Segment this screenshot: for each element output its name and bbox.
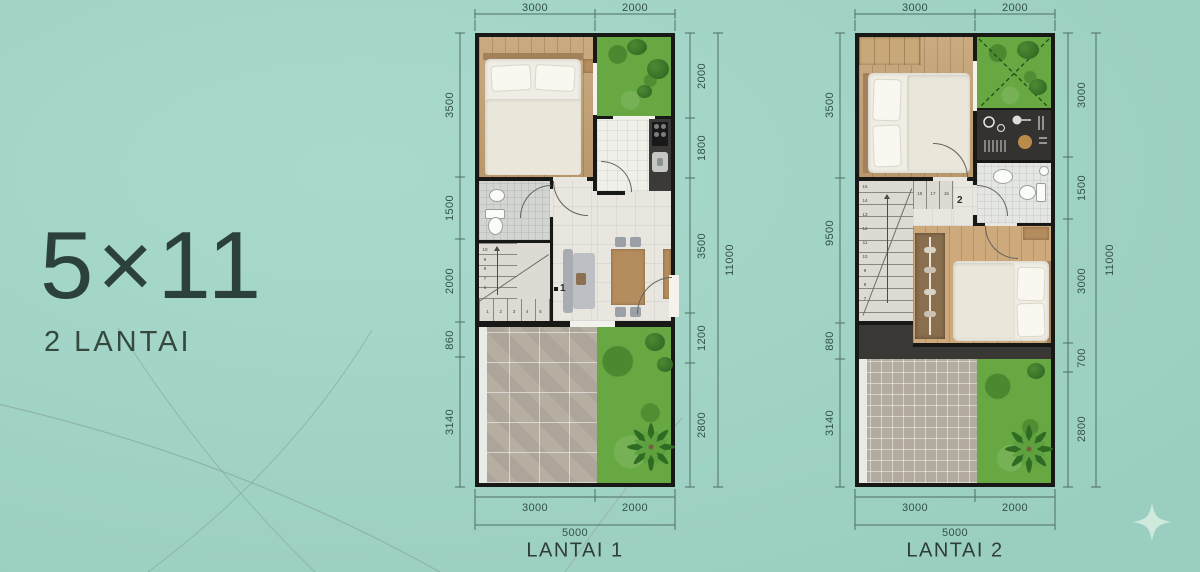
dim-label: 2800: [696, 412, 708, 438]
dim-label: 2000: [622, 2, 648, 14]
dim-label: 880: [824, 331, 836, 351]
utility-area: [977, 110, 1051, 160]
front-garden-below: [977, 359, 1051, 483]
dim-label-total: 11000: [1104, 244, 1116, 276]
dim-label: 3000: [902, 2, 928, 14]
plan-label-lantai-2: LANTAI 2: [906, 540, 1003, 563]
toilet-bowl-icon: [488, 217, 503, 235]
void-cross-lines: [977, 37, 1051, 110]
side-walkway: [479, 327, 487, 483]
side-table: [1023, 227, 1049, 240]
window: [593, 63, 597, 115]
sofa-cushion: [576, 273, 586, 285]
dim-label: 2000: [1002, 2, 1028, 14]
dim-label-total: 5000: [562, 527, 588, 539]
pillow: [872, 79, 901, 122]
dim-label: 1800: [696, 135, 708, 161]
roof-edge: [859, 359, 867, 483]
plan-label-lantai-1: LANTAI 1: [526, 540, 623, 563]
carport: [479, 327, 597, 483]
dim-label: 3500: [444, 92, 456, 118]
void-garden: [977, 37, 1051, 110]
stair-top-flight: 181716: [913, 181, 953, 209]
dim-label: 9500: [824, 220, 836, 246]
dim-label: 3500: [824, 92, 836, 118]
toilet-bowl-icon: [1019, 185, 1036, 200]
utensils-icons: [977, 110, 1051, 160]
dim-label: 1500: [1076, 175, 1088, 201]
sofa: [563, 249, 573, 313]
pillow: [872, 125, 901, 168]
palm-plant-icon: [623, 419, 679, 475]
floorplan-lantai-1: 109876 12345 1: [475, 33, 675, 487]
staircase: 109876 12345: [479, 243, 550, 321]
dim-label: 700: [1076, 348, 1088, 368]
window: [973, 61, 977, 111]
chair: [630, 237, 641, 247]
dim-label: 3000: [522, 2, 548, 14]
pillow: [490, 64, 531, 92]
bath-sink-icon: [993, 169, 1013, 184]
toilet-tank-icon: [1036, 183, 1046, 202]
stair-step-numbers: 12345: [481, 309, 547, 318]
chair: [615, 237, 626, 247]
sink-icon: [652, 152, 668, 172]
roof-edge-band: [859, 325, 913, 359]
rear-garden: [597, 37, 671, 116]
roof-edge-band: [913, 347, 1051, 359]
floors-subtitle: 2 LANTAI: [44, 326, 192, 359]
wardrobe: [859, 37, 921, 65]
blanket: [485, 99, 581, 175]
dim-label: 2000: [622, 502, 648, 514]
palm-plant-icon: [1001, 421, 1057, 477]
floorplan-poster: { "title": { "dimensions": "5×11", "floo…: [0, 0, 1200, 572]
dim-label: 3000: [1076, 268, 1088, 294]
floor-marker-2: 2: [957, 195, 963, 206]
corridor: [913, 209, 953, 226]
dim-label: 2000: [444, 268, 456, 294]
stair-step-numbers: 151413121110987: [860, 184, 870, 310]
dim-label: 3140: [824, 410, 836, 436]
dim-label: 3500: [696, 233, 708, 259]
pillow: [534, 64, 575, 92]
plot-size-title: 5×11: [40, 218, 265, 314]
dim-label-total: 11000: [724, 244, 736, 276]
dim-label: 1200: [696, 325, 708, 351]
floorplan-lantai-2: 151413121110987 181716 2: [855, 33, 1055, 487]
stair-step-numbers: 109876: [480, 247, 490, 295]
sparkle-icon: [1133, 503, 1171, 541]
dim-label: 3000: [902, 502, 928, 514]
dim-label-total: 5000: [942, 527, 968, 539]
carport-roof: [859, 359, 977, 483]
dim-label: 3000: [522, 502, 548, 514]
stair-step-numbers: 181716: [913, 191, 953, 199]
dim-label: 2000: [1002, 502, 1028, 514]
dim-label: 2000: [696, 63, 708, 89]
dim-label: 3140: [444, 409, 456, 435]
pillow: [1016, 303, 1045, 338]
shower-icon: [1039, 166, 1049, 176]
bath-sink-icon: [489, 189, 505, 202]
window: [613, 116, 655, 119]
stove-icon: [652, 122, 668, 146]
blanket: [953, 263, 1015, 339]
dim-label: 3000: [1076, 82, 1088, 108]
dim-label: 2800: [1076, 416, 1088, 442]
pillow: [1016, 267, 1045, 302]
front-garden: [597, 327, 671, 483]
marker-square-icon: [554, 287, 558, 291]
staircase-upper: 151413121110987: [859, 181, 913, 321]
open-wardrobe: [915, 233, 945, 339]
dim-label: 1500: [444, 195, 456, 221]
dim-label: 860: [444, 330, 456, 350]
chair: [615, 307, 626, 317]
floor-marker-1: 1: [554, 283, 566, 294]
